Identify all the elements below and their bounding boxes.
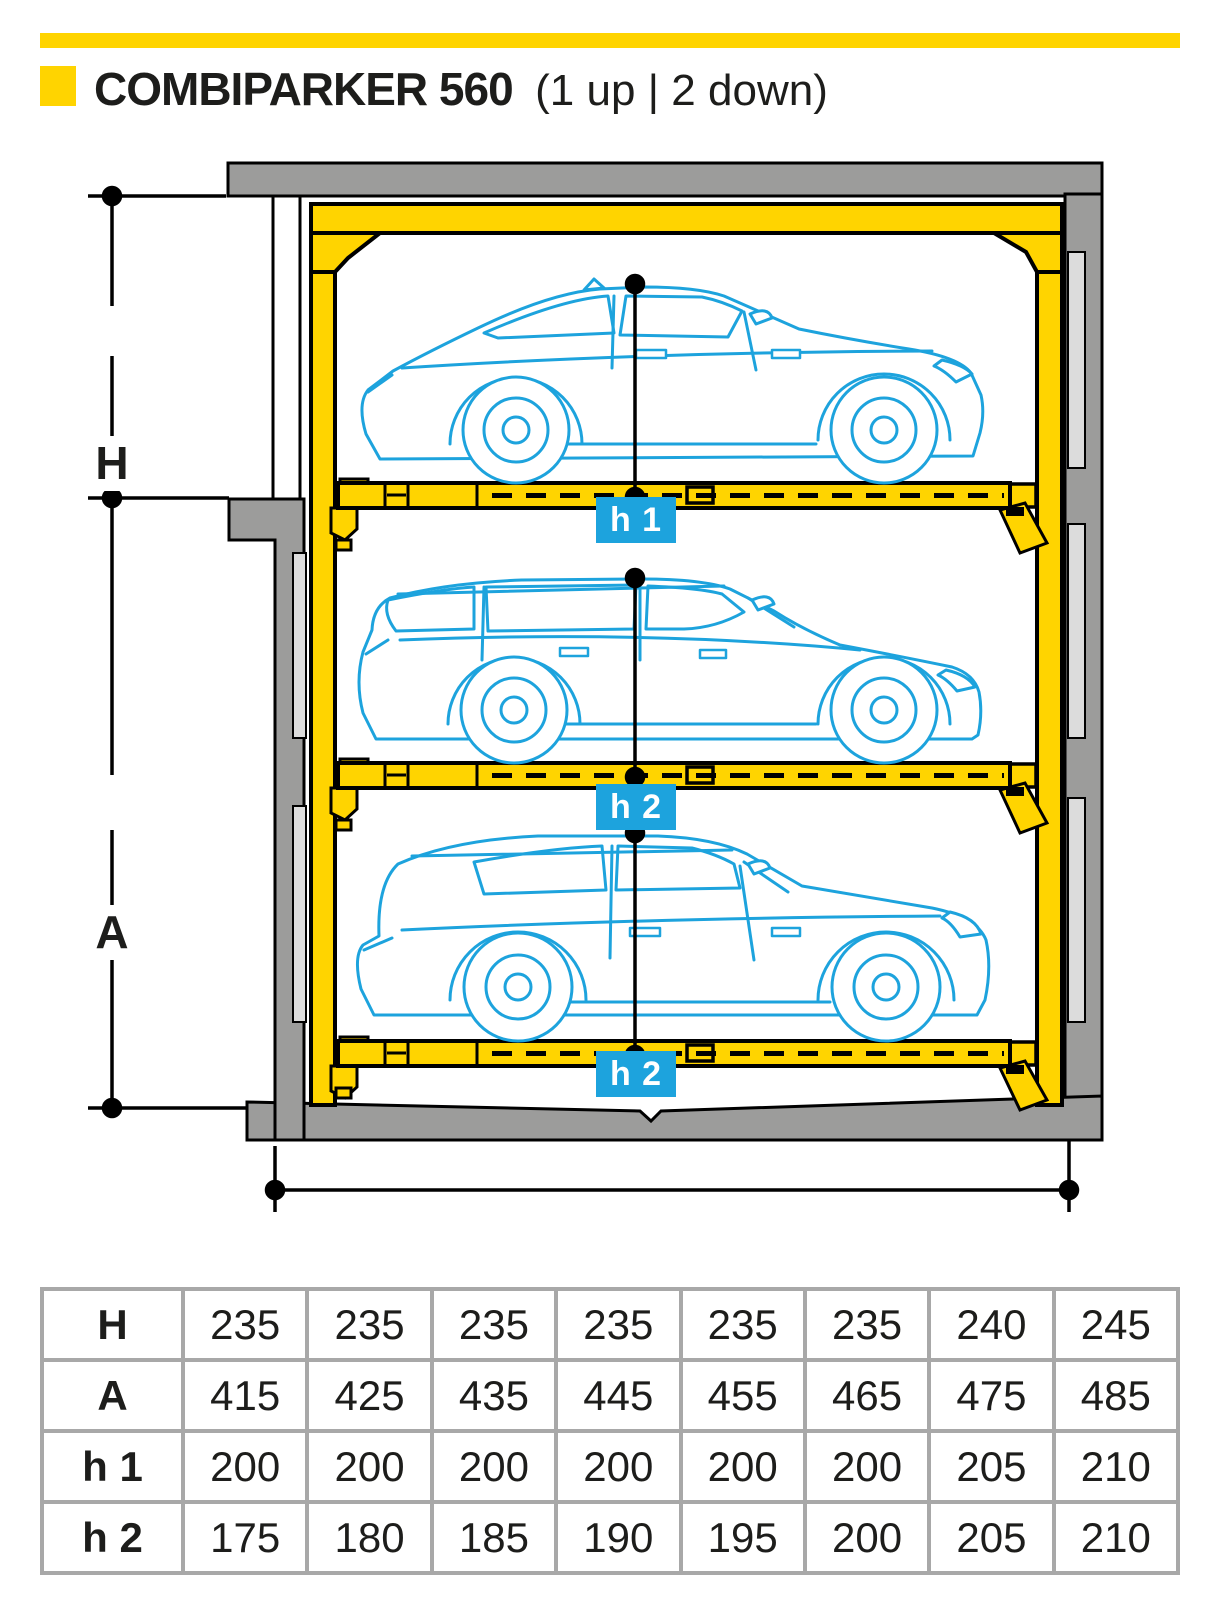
table-value: 235	[185, 1291, 305, 1358]
table-value: 200	[434, 1433, 554, 1500]
table-value: 210	[1056, 1504, 1176, 1571]
platform-middle	[331, 759, 1047, 833]
top-beam-left-corner	[311, 233, 380, 272]
row-label-h1: h 1	[44, 1433, 181, 1500]
platform-lower	[331, 1037, 1047, 1110]
table-value: 195	[683, 1504, 803, 1571]
table-value: 445	[558, 1362, 678, 1429]
dim-label-h1: h 1	[596, 497, 676, 543]
table-value: 435	[434, 1362, 554, 1429]
page-title: COMBIPARKER 560 (1 up | 2 down)	[94, 62, 828, 116]
pit-floor	[247, 1096, 1102, 1140]
table-value: 245	[1056, 1291, 1176, 1358]
table-value: 200	[807, 1433, 927, 1500]
row-label-H: H	[44, 1291, 181, 1358]
table-value: 205	[931, 1504, 1051, 1571]
table-value: 475	[931, 1362, 1051, 1429]
table-value: 190	[558, 1504, 678, 1571]
table-value: 235	[434, 1291, 554, 1358]
datasheet-page: COMBIPARKER 560 (1 up | 2 down)	[0, 0, 1220, 1610]
table-value: 455	[683, 1362, 803, 1429]
right-column	[1037, 233, 1062, 1105]
table-value: 200	[185, 1433, 305, 1500]
product-subtitle: (1 up | 2 down)	[535, 66, 828, 115]
dim-label-H: H	[89, 436, 134, 491]
header-rule	[40, 33, 1180, 48]
table-value: 200	[807, 1504, 927, 1571]
product-title: COMBIPARKER 560	[94, 63, 513, 115]
table-value: 185	[434, 1504, 554, 1571]
row-label-A: A	[44, 1362, 181, 1429]
car-top	[362, 279, 983, 483]
car-bottom	[357, 836, 988, 1041]
table-value: 175	[185, 1504, 305, 1571]
dim-label-h2-bottom: h 2	[596, 1051, 676, 1097]
top-beam	[311, 204, 1062, 233]
table-value: 200	[558, 1433, 678, 1500]
title-bullet-square	[40, 66, 76, 106]
table-value: 415	[185, 1362, 305, 1429]
dim-label-h2-middle: h 2	[596, 784, 676, 830]
table-value: 200	[683, 1433, 803, 1500]
left-column	[311, 233, 335, 1105]
row-label-h2: h 2	[44, 1504, 181, 1571]
car-middle	[359, 579, 981, 763]
table-value: 485	[1056, 1362, 1176, 1429]
table-value: 235	[309, 1291, 429, 1358]
left-upper-wall	[273, 196, 300, 499]
table-value: 235	[558, 1291, 678, 1358]
platform-upper	[331, 479, 1047, 553]
table-value: 180	[309, 1504, 429, 1571]
table-value: 465	[807, 1362, 927, 1429]
top-beam-right-corner	[994, 233, 1062, 272]
dimension-table: H 235 235 235 235 235 235 240 245 A 415 …	[40, 1287, 1180, 1575]
table-value: 235	[807, 1291, 927, 1358]
table-value: 235	[683, 1291, 803, 1358]
table-value: 200	[309, 1433, 429, 1500]
table-value: 240	[931, 1291, 1051, 1358]
ceiling-slab	[228, 163, 1102, 196]
table-value: 210	[1056, 1433, 1176, 1500]
table-value: 425	[309, 1362, 429, 1429]
table-value: 205	[931, 1433, 1051, 1500]
dim-label-A: A	[89, 905, 134, 960]
